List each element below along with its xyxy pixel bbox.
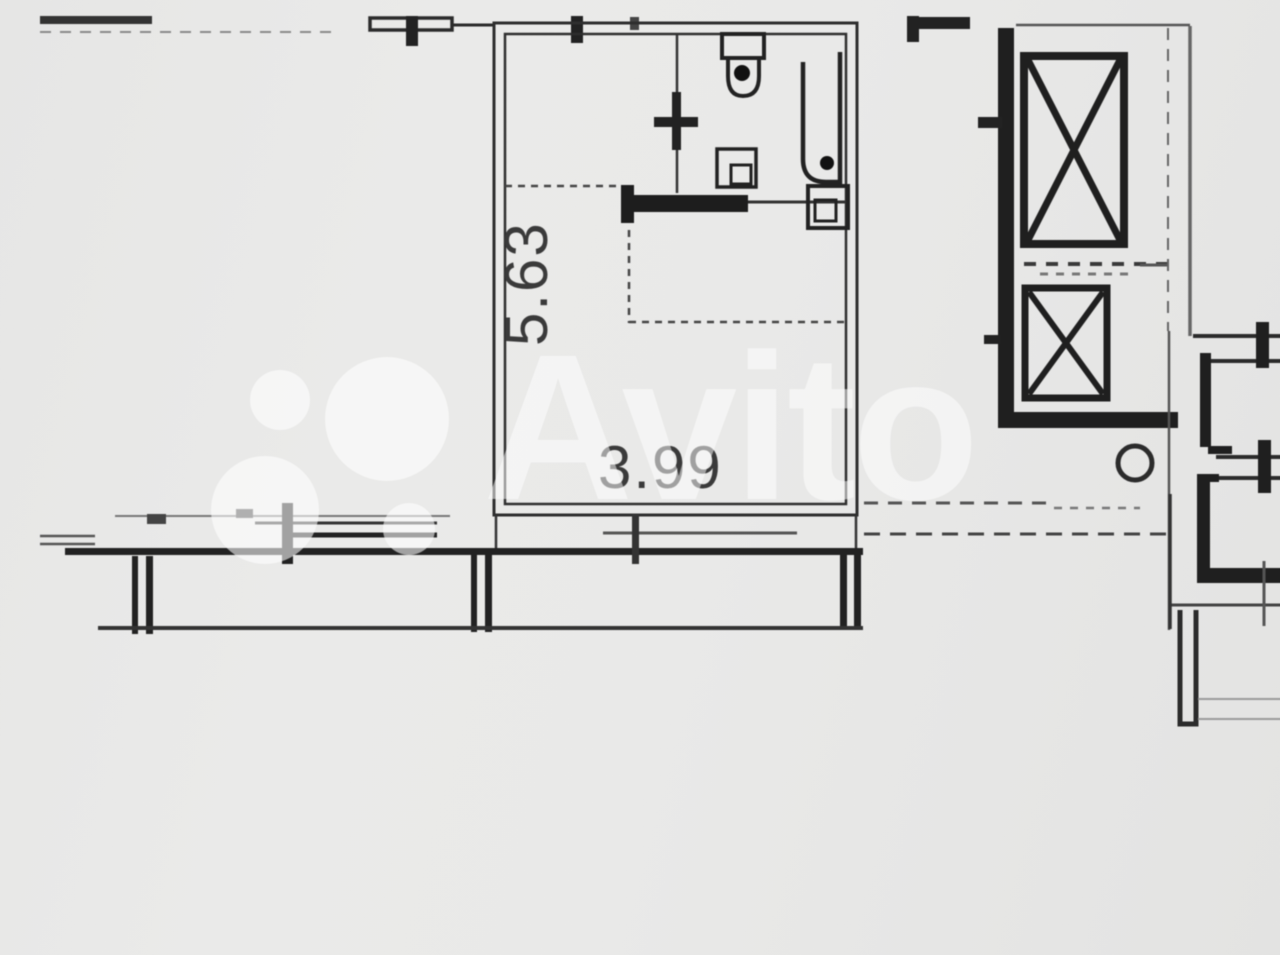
- bathtub-symbol: [803, 52, 840, 182]
- elevator-shaft-large: [1024, 56, 1124, 244]
- balcony-columns: [132, 548, 861, 634]
- watermark: Avito: [211, 312, 975, 564]
- wall-segment: [40, 16, 152, 24]
- window-tick: [406, 16, 418, 46]
- toilet-tank: [722, 34, 764, 58]
- wall-tick: [571, 16, 583, 43]
- watermark-text: Avito: [483, 312, 975, 544]
- counter-bar: [632, 195, 748, 212]
- window-hardware-mark: [147, 514, 166, 524]
- wall-connector: [1208, 446, 1232, 454]
- window-tick: [1258, 440, 1271, 493]
- washer-door: [731, 165, 751, 184]
- washing-machine-symbol: [717, 149, 756, 187]
- wall-tick: [978, 117, 1002, 128]
- thick-wall-vertical: [998, 28, 1014, 424]
- thick-wall-horizontal: [998, 412, 1178, 428]
- facade-wall: [65, 548, 863, 555]
- wall-segment: [918, 17, 970, 29]
- wall-segment: [1197, 481, 1210, 579]
- floor-plan-photo: 5.63 3.99: [40, 16, 1280, 955]
- window-tick: [1256, 322, 1269, 368]
- wall-segment: [1200, 353, 1211, 447]
- elevator-shaft-small: [1025, 288, 1107, 398]
- floor-plan-drawing: 5.63 3.99: [40, 16, 1280, 955]
- toilet-symbol: [722, 34, 764, 96]
- toilet-drain: [734, 65, 750, 81]
- wall-stub: [907, 16, 919, 42]
- elevator-block: [978, 25, 1190, 630]
- right-edge-walls: [1170, 322, 1280, 724]
- wall-connector: [1197, 474, 1219, 482]
- thick-wall-horizontal: [1197, 568, 1280, 583]
- column-circle-symbol: [1118, 446, 1152, 480]
- wall-pilaster: [1180, 610, 1196, 724]
- wall-tick: [984, 335, 1000, 344]
- sink-symbol: [808, 186, 848, 228]
- riser-cross-bar: [654, 117, 698, 127]
- bathtub-drain: [820, 156, 834, 170]
- counter-symbol: [621, 185, 846, 223]
